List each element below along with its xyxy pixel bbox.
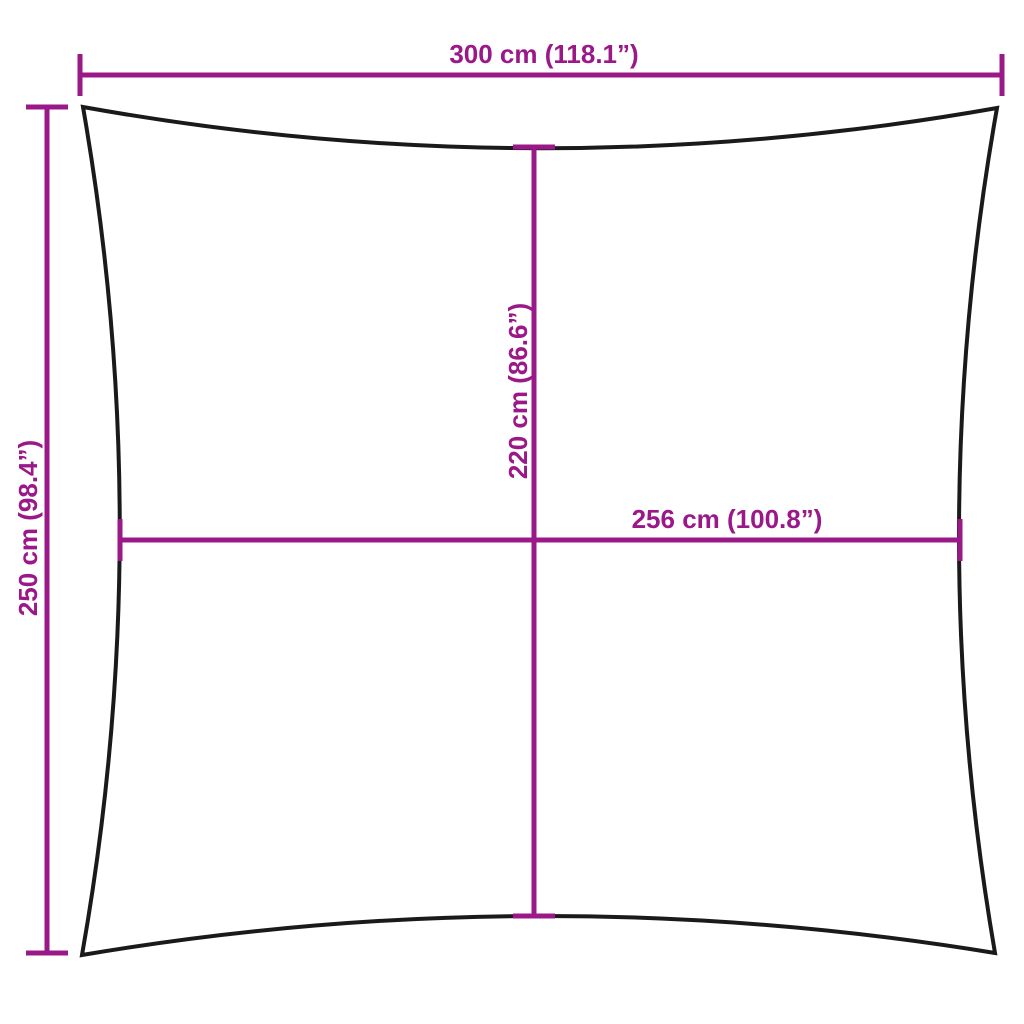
dimension-inner-height: 220 cm (86.6”) [503,147,555,916]
inner-width-label: 256 cm (100.8”) [632,504,823,534]
inner-height-label: 220 cm (86.6”) [503,303,533,479]
diagram-stage: 300 cm (118.1”) 250 cm (98.4”) 220 cm (8… [0,0,1024,1024]
shade-sail-dimension-diagram: 300 cm (118.1”) 250 cm (98.4”) 220 cm (8… [0,0,1024,1024]
outer-height-label: 250 cm (98.4”) [13,440,43,616]
outer-width-label: 300 cm (118.1”) [449,39,638,69]
dimension-outer-height: 250 cm (98.4”) [13,107,68,953]
dimension-outer-width: 300 cm (118.1”) [80,39,1002,96]
dimension-inner-width: 256 cm (100.8”) [120,504,960,561]
shade-sail-outline [82,107,997,955]
